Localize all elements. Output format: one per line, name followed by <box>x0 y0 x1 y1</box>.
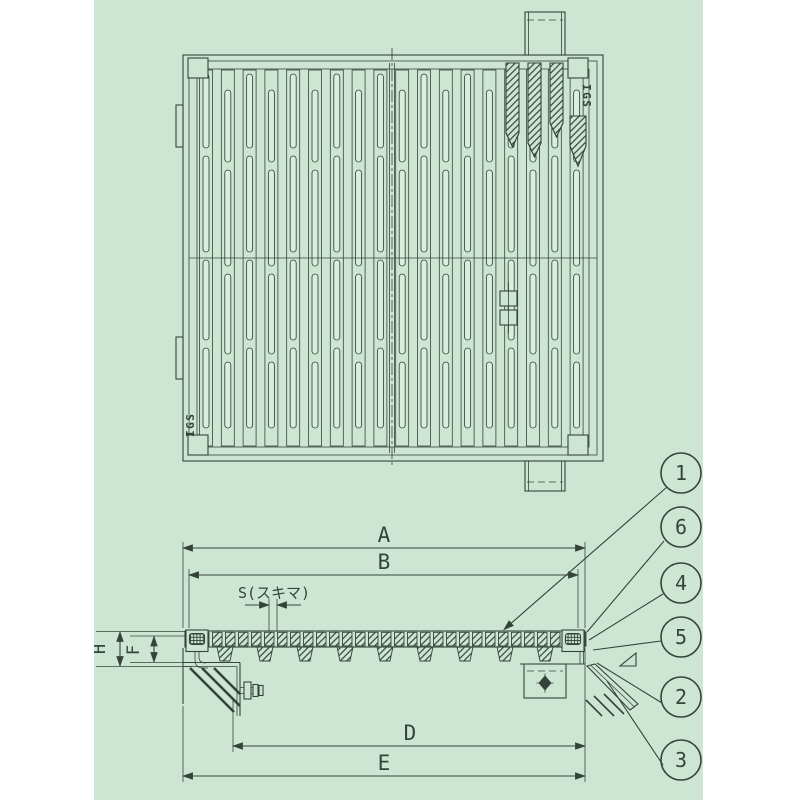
grating-slot <box>399 274 405 354</box>
grating-slot <box>486 274 492 354</box>
grating-slot <box>421 156 427 252</box>
dim-label-s: S(スキマ) <box>238 584 310 602</box>
flange-segment <box>369 632 379 646</box>
dim-label-f: F <box>124 645 144 655</box>
grating-slot <box>225 90 231 162</box>
grating-slot <box>377 156 383 252</box>
grating-slot <box>530 362 536 428</box>
grating-slot <box>290 74 296 148</box>
logo-mark-top-right: IGS <box>580 84 593 108</box>
grating-technical-drawing: IGS IGS <box>94 0 703 800</box>
grating-slot <box>312 274 318 354</box>
dimension-e: E <box>183 706 585 782</box>
grating-slot <box>530 170 536 266</box>
grating-slot <box>574 274 580 354</box>
grating-slot <box>356 90 362 162</box>
grating-slot <box>290 260 296 340</box>
grating-slot <box>356 362 362 428</box>
grating-slot <box>377 260 383 340</box>
grating-slot <box>312 90 318 162</box>
flange-segment <box>473 632 483 646</box>
grating-slot <box>356 170 362 266</box>
flange-segment <box>252 632 262 646</box>
bearing-bar-tooth <box>377 647 393 661</box>
flange-segment <box>213 632 223 646</box>
flange-segment <box>434 632 444 646</box>
grating-slot <box>574 362 580 428</box>
bearing-bar-tooth <box>217 647 233 661</box>
corner-block-bottom-right <box>568 435 588 455</box>
flange-segment <box>551 632 561 646</box>
bearing-bar-tooth <box>337 647 353 661</box>
grating-slot <box>399 90 405 162</box>
callout-balloon-5: 5 <box>661 617 701 657</box>
grating-slot <box>443 170 449 266</box>
section-bearing-bars <box>217 647 553 661</box>
dim-label-h: H <box>94 644 110 654</box>
flange-segment <box>486 632 496 646</box>
grating-slot <box>334 348 340 428</box>
grating-slot <box>443 362 449 428</box>
grating-slot <box>203 156 209 252</box>
grating-slot <box>312 362 318 428</box>
drawing-sheet: IGS IGS <box>94 0 703 800</box>
grating-slot <box>552 348 558 428</box>
grating-slot <box>421 260 427 340</box>
flange-segment <box>291 632 301 646</box>
anchor-tab-top <box>525 12 565 55</box>
support-angle-left <box>183 648 240 716</box>
callout-number: 1 <box>675 461 687 485</box>
grating-slot <box>508 156 514 252</box>
section-view: A B S(スキマ) H F <box>94 453 701 782</box>
end-clip-right <box>562 630 584 664</box>
flange-segment <box>408 632 418 646</box>
dim-label-d: D <box>404 721 417 745</box>
flange-segment <box>278 632 288 646</box>
grating-slot <box>334 260 340 340</box>
callout-number: 5 <box>675 625 687 649</box>
flange-segment <box>395 632 405 646</box>
corner-block-top-right <box>568 58 588 78</box>
grating-slot <box>443 274 449 354</box>
grating-slot <box>356 274 362 354</box>
grating-slot <box>268 274 274 354</box>
callout-balloons: 1 6 4 5 2 3 <box>661 453 701 780</box>
leader-5 <box>593 641 661 650</box>
callout-leaders <box>504 487 667 765</box>
grating-slot <box>574 170 580 266</box>
bearing-bar-tooth <box>537 647 553 661</box>
grating-slot <box>247 260 253 340</box>
grating-slot <box>530 274 536 354</box>
bearing-bar-tooth <box>417 647 433 661</box>
hinge-tab-left-upper <box>176 105 183 147</box>
dim-label-b: B <box>378 550 391 574</box>
grating-slot <box>312 170 318 266</box>
dimension-s: S(スキマ) <box>238 584 310 631</box>
flange-segment <box>239 632 249 646</box>
flange-segment <box>421 632 431 646</box>
callout-balloon-3: 3 <box>661 740 701 780</box>
grating-slot <box>486 170 492 266</box>
callout-number: 3 <box>675 748 687 772</box>
flange-segment <box>304 632 314 646</box>
grating-slot <box>203 348 209 428</box>
flange-segment <box>382 632 392 646</box>
grating-slot <box>247 74 253 148</box>
grating-slot <box>421 74 427 148</box>
corner-block-bottom-left <box>188 435 208 455</box>
grating-slot <box>486 362 492 428</box>
callout-number: 2 <box>675 685 687 709</box>
side-bolt-left <box>240 682 263 699</box>
grating-slot <box>203 260 209 340</box>
flange-segment <box>226 632 236 646</box>
grating-slot <box>225 362 231 428</box>
grating-slot <box>268 170 274 266</box>
anchor-tab-bottom <box>525 461 565 491</box>
grating-slot <box>247 348 253 428</box>
bearing-bar-tooth <box>297 647 313 661</box>
callout-number: 4 <box>675 571 687 595</box>
grating-slot <box>225 170 231 266</box>
hinge-tab-left-lower <box>176 337 183 379</box>
support-right <box>520 648 638 716</box>
flange-segment <box>356 632 366 646</box>
grating-slot <box>552 156 558 252</box>
leader-6 <box>587 541 664 632</box>
grating-slot <box>203 74 209 148</box>
grating-slot <box>421 348 427 428</box>
grating-slot <box>552 260 558 340</box>
grating-slot <box>247 156 253 252</box>
grating-slot <box>465 74 471 148</box>
flange-segment <box>265 632 275 646</box>
page: { "colors": { "paper": "#cde6d4", "ink":… <box>0 0 800 800</box>
grating-slot <box>377 74 383 148</box>
grating-slot <box>399 362 405 428</box>
grating-slot <box>465 348 471 428</box>
section-top-strip <box>187 632 587 646</box>
grating-slot <box>508 348 514 428</box>
callout-number: 6 <box>675 515 687 539</box>
leader-3 <box>607 681 663 765</box>
grating-slot <box>377 348 383 428</box>
callout-balloon-2: 2 <box>661 677 701 717</box>
grating-slot <box>465 156 471 252</box>
callout-balloon-6: 6 <box>661 507 701 547</box>
flange-segment <box>538 632 548 646</box>
dim-label-a: A <box>378 523 391 547</box>
flange-segment <box>330 632 340 646</box>
bearing-bar-tooth <box>457 647 473 661</box>
grating-slot <box>290 156 296 252</box>
flange-segment <box>512 632 522 646</box>
grating-slot <box>225 274 231 354</box>
grating-slot <box>486 90 492 162</box>
grating-slot <box>399 170 405 266</box>
grating-slot <box>268 90 274 162</box>
grating-slot <box>290 348 296 428</box>
flange-segment <box>317 632 327 646</box>
grating-slot <box>334 156 340 252</box>
flange-segment <box>447 632 457 646</box>
grating-slot <box>268 362 274 428</box>
flange-segment <box>525 632 535 646</box>
bearing-bar-tooth <box>497 647 513 661</box>
leader-1 <box>504 487 667 630</box>
grating-slot <box>465 260 471 340</box>
plan-view: IGS IGS <box>176 12 603 491</box>
logo-mark-bottom-left: IGS <box>184 413 197 437</box>
bearing-bar-tooth <box>257 647 273 661</box>
callout-balloon-4: 4 <box>661 563 701 603</box>
dim-label-e: E <box>378 751 391 775</box>
flange-segment <box>460 632 470 646</box>
callout-balloon-1: 1 <box>661 453 701 493</box>
grating-slot <box>334 74 340 148</box>
grating-slot <box>443 90 449 162</box>
flange-segment <box>499 632 509 646</box>
corner-block-top-left <box>188 58 208 78</box>
flange-segment <box>343 632 353 646</box>
weld-triangle <box>620 653 636 666</box>
